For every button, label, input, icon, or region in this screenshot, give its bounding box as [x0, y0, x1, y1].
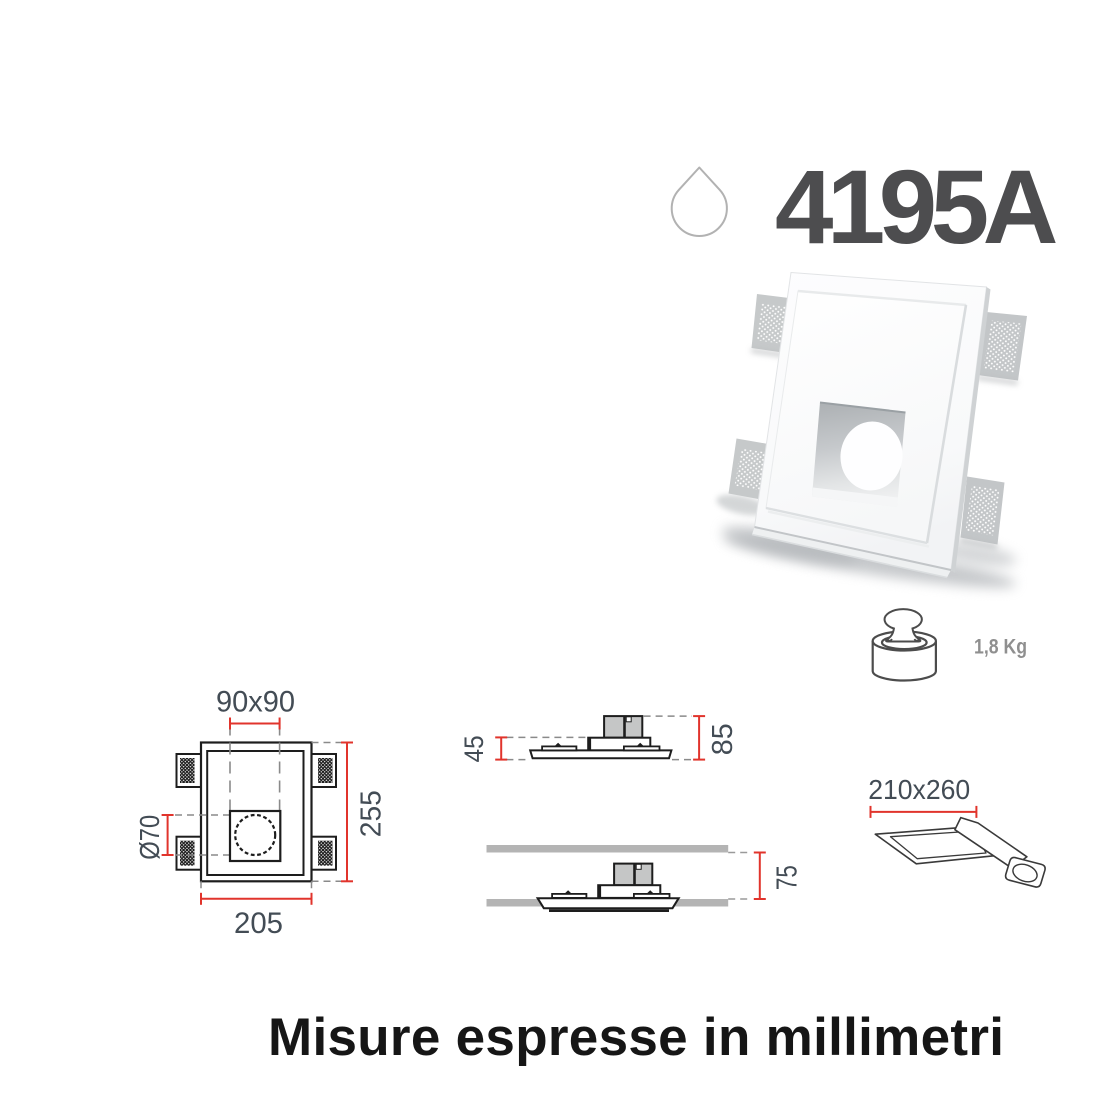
svg-text:205: 205 — [234, 907, 283, 940]
svg-text:45: 45 — [459, 735, 489, 762]
svg-text:255: 255 — [356, 790, 388, 837]
svg-text:Misure espresse in millimetri: Misure espresse in millimetri — [268, 1008, 1004, 1067]
svg-text:210x260: 210x260 — [868, 774, 970, 805]
svg-text:Ø70: Ø70 — [134, 815, 165, 860]
svg-text:90x90: 90x90 — [216, 686, 295, 719]
svg-text:4195A: 4195A — [775, 149, 1057, 266]
svg-text:75: 75 — [772, 865, 804, 890]
svg-text:85: 85 — [707, 723, 739, 755]
svg-text:1,8 Kg: 1,8 Kg — [974, 636, 1027, 659]
